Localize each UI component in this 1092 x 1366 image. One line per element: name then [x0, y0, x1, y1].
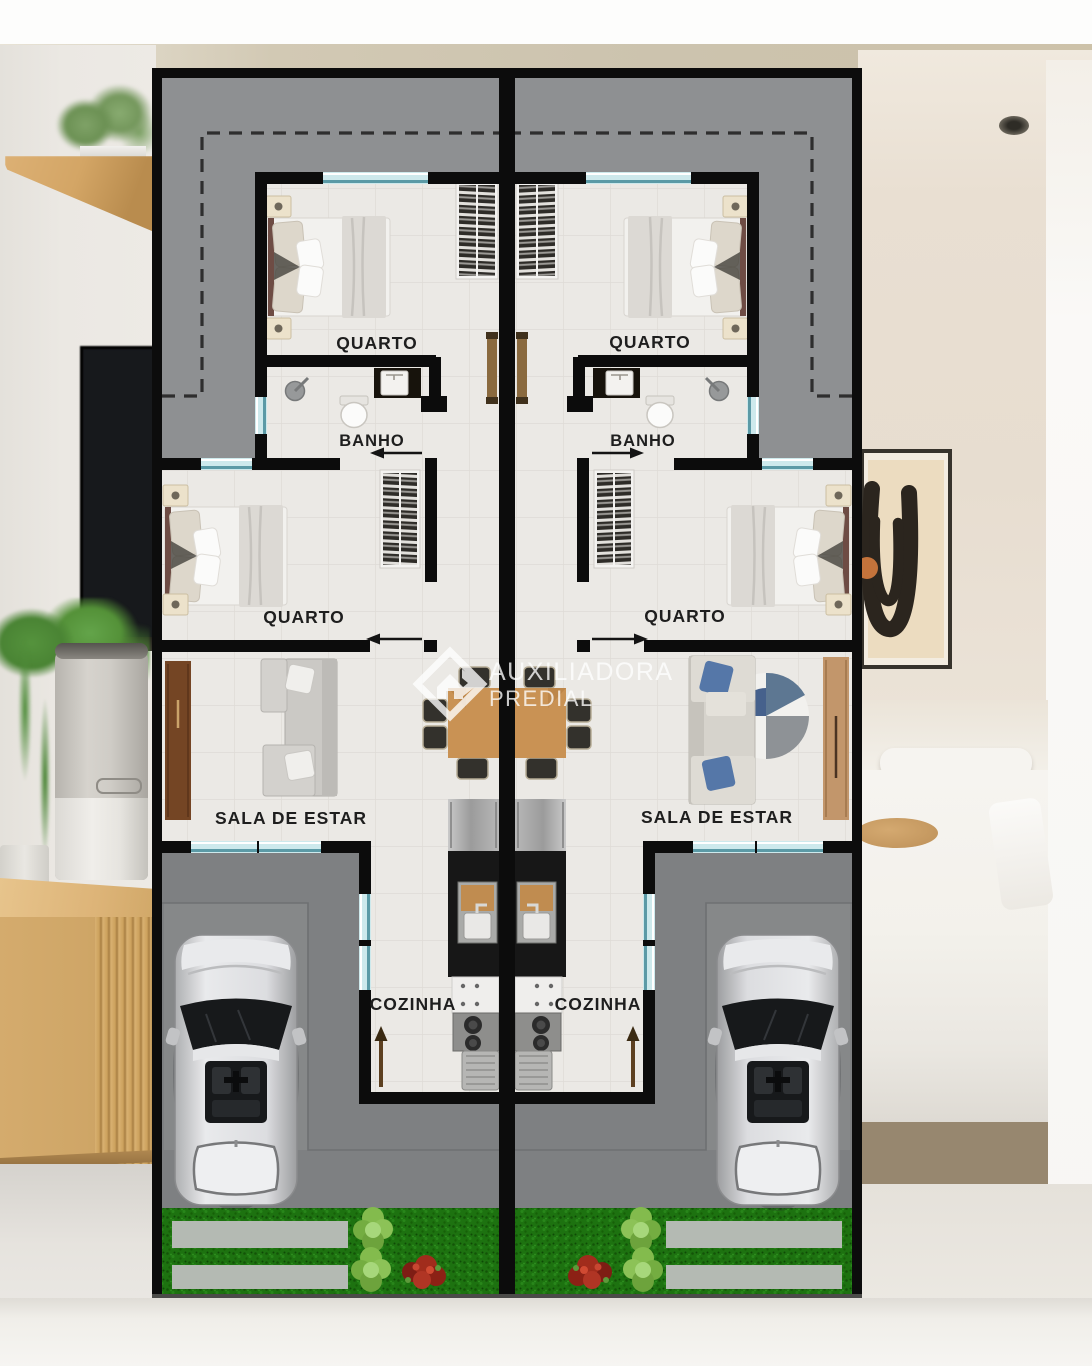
svg-text:PREDIAL: PREDIAL [489, 686, 594, 711]
svg-text:QUARTO: QUARTO [336, 333, 418, 353]
svg-text:COZINHA: COZINHA [555, 994, 642, 1014]
svg-text:COZINHA: COZINHA [370, 994, 457, 1014]
svg-text:BANHO: BANHO [610, 432, 676, 450]
svg-text:QUARTO: QUARTO [609, 332, 691, 352]
svg-text:SALA DE ESTAR: SALA DE ESTAR [641, 807, 793, 827]
svg-text:QUARTO: QUARTO [263, 607, 345, 627]
svg-text:BANHO: BANHO [339, 432, 405, 450]
svg-text:AUXILIADORA: AUXILIADORA [489, 658, 674, 686]
svg-text:SALA DE ESTAR: SALA DE ESTAR [215, 808, 367, 828]
svg-text:QUARTO: QUARTO [644, 606, 726, 626]
